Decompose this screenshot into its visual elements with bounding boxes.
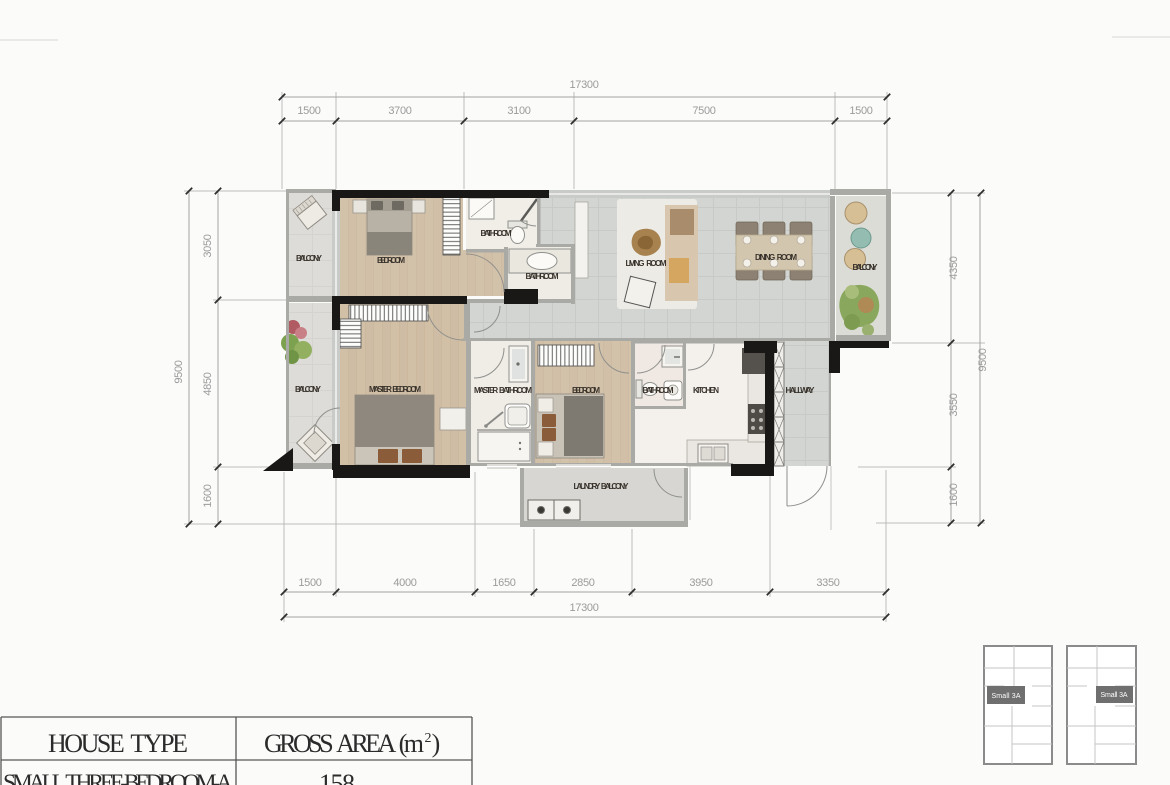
svg-text:MASTER BATHROOM: MASTER BATHROOM bbox=[474, 386, 532, 395]
svg-text:BALCONY: BALCONY bbox=[853, 263, 879, 272]
svg-text:1650: 1650 bbox=[492, 577, 515, 589]
svg-text:4850: 4850 bbox=[202, 372, 214, 395]
svg-text:9500: 9500 bbox=[977, 348, 989, 371]
svg-text:7500: 7500 bbox=[692, 105, 715, 117]
svg-text:1500: 1500 bbox=[297, 105, 320, 117]
svg-text:Small 3A: Small 3A bbox=[1101, 692, 1128, 699]
svg-text:4350: 4350 bbox=[948, 256, 960, 279]
svg-text:BEDROOM: BEDROOM bbox=[572, 386, 600, 395]
svg-text:1600: 1600 bbox=[948, 483, 960, 506]
svg-text:MASTER BEDROOM: MASTER BEDROOM bbox=[369, 385, 421, 394]
svg-text:1500: 1500 bbox=[298, 577, 321, 589]
svg-text:BALCONY: BALCONY bbox=[295, 385, 322, 394]
svg-text:17300: 17300 bbox=[569, 79, 598, 91]
svg-text:SMALL THREE-BEDROOM-A: SMALL THREE-BEDROOM-A bbox=[3, 770, 233, 785]
svg-text:BATHROOM: BATHROOM bbox=[643, 386, 674, 395]
svg-text:158: 158 bbox=[319, 769, 355, 785]
svg-text:3100: 3100 bbox=[507, 105, 530, 117]
svg-text:): ) bbox=[432, 729, 441, 758]
svg-text:BATHROOM: BATHROOM bbox=[526, 272, 559, 281]
svg-text:DINING ROOM: DINING ROOM bbox=[755, 253, 797, 262]
svg-text:1600: 1600 bbox=[202, 484, 214, 507]
svg-text:17300: 17300 bbox=[569, 602, 598, 614]
svg-text:3350: 3350 bbox=[816, 577, 839, 589]
svg-text:BATHROOM: BATHROOM bbox=[481, 229, 512, 238]
svg-text:2: 2 bbox=[425, 731, 432, 746]
svg-text:3050: 3050 bbox=[202, 234, 214, 257]
svg-text:9500: 9500 bbox=[173, 360, 185, 383]
svg-text:1500: 1500 bbox=[849, 105, 872, 117]
svg-text:Small 3A: Small 3A bbox=[992, 693, 1021, 700]
svg-text:3700: 3700 bbox=[388, 105, 411, 117]
svg-text:KITCHEN: KITCHEN bbox=[693, 386, 719, 395]
svg-text:2850: 2850 bbox=[571, 577, 594, 589]
svg-text:BALCONY: BALCONY bbox=[296, 254, 323, 263]
svg-text:HALLWAY: HALLWAY bbox=[786, 386, 816, 395]
svg-text:LAUNDRY BALCONY: LAUNDRY BALCONY bbox=[574, 482, 630, 491]
svg-text:HOUSE TYPE: HOUSE TYPE bbox=[48, 729, 188, 758]
svg-text:3950: 3950 bbox=[689, 577, 712, 589]
svg-text:BEDROOM: BEDROOM bbox=[377, 256, 405, 265]
svg-text:LIVING ROOM: LIVING ROOM bbox=[626, 259, 667, 268]
svg-text:4000: 4000 bbox=[393, 577, 416, 589]
svg-text:3550: 3550 bbox=[948, 393, 960, 416]
svg-text:GROSS AREA (m: GROSS AREA (m bbox=[264, 729, 424, 758]
